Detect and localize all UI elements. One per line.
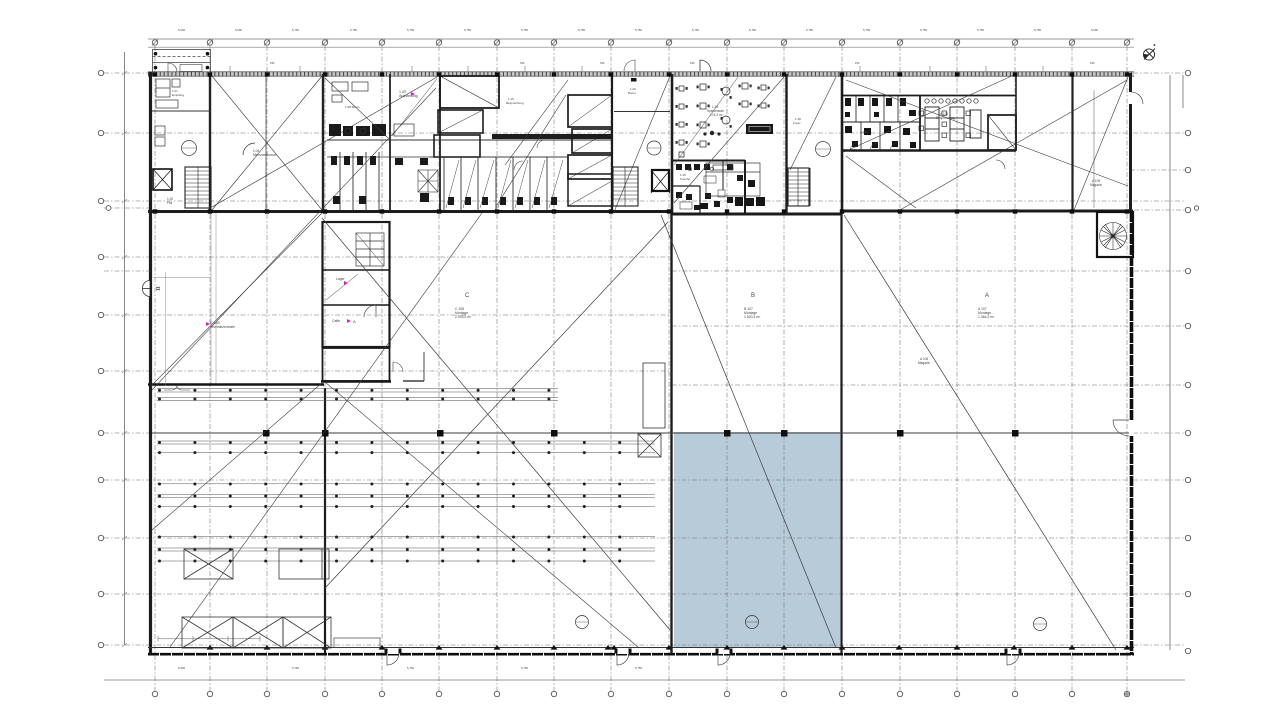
svg-text:5,750: 5,750 bbox=[920, 28, 927, 32]
svg-text:Besprechung: Besprechung bbox=[936, 116, 955, 120]
svg-text:5,750: 5,750 bbox=[806, 28, 813, 32]
svg-text:2.093,0 m²: 2.093,0 m² bbox=[455, 315, 472, 319]
svg-text:5,750: 5,750 bbox=[464, 28, 471, 32]
svg-text:Ausstellung: Ausstellung bbox=[399, 94, 418, 98]
svg-text:5,750: 5,750 bbox=[977, 28, 984, 32]
svg-text:Empfang: Empfang bbox=[172, 93, 184, 97]
svg-text:F90: F90 bbox=[600, 61, 605, 65]
svg-text:Foyer: Foyer bbox=[793, 121, 801, 125]
svg-text:Flur: Flur bbox=[167, 201, 173, 205]
svg-text:5,750: 5,750 bbox=[521, 666, 528, 670]
svg-text:5,750: 5,750 bbox=[863, 28, 870, 32]
svg-text:C: C bbox=[465, 293, 470, 299]
svg-text:1.364,2 m²: 1.364,2 m² bbox=[978, 315, 995, 319]
svg-text:5,000: 5,000 bbox=[235, 28, 242, 32]
svg-text:174,3 m²: 174,3 m² bbox=[710, 113, 723, 117]
svg-text:B: B bbox=[751, 293, 755, 299]
svg-text:F90: F90 bbox=[855, 61, 860, 65]
svg-text:5,750: 5,750 bbox=[749, 28, 756, 32]
svg-text:5,750: 5,750 bbox=[1034, 28, 1041, 32]
svg-text:F90: F90 bbox=[270, 61, 275, 65]
svg-text:1.520,3 m²: 1.520,3 m² bbox=[744, 315, 761, 319]
svg-text:F90: F90 bbox=[690, 61, 695, 65]
svg-text:1.08 Buero: 1.08 Buero bbox=[345, 105, 360, 109]
svg-text:A: A bbox=[353, 319, 356, 324]
svg-text:Technikzentrale: Technikzentrale bbox=[210, 325, 235, 329]
svg-text:5,750: 5,750 bbox=[635, 28, 642, 32]
svg-text:5,000: 5,000 bbox=[178, 666, 185, 670]
svg-text:F90: F90 bbox=[1090, 61, 1095, 65]
svg-text:A: A bbox=[985, 293, 989, 299]
svg-text:5,750: 5,750 bbox=[578, 28, 585, 32]
svg-text:5,750: 5,750 bbox=[292, 28, 299, 32]
svg-text:5,750: 5,750 bbox=[292, 666, 299, 670]
svg-text:Lager: Lager bbox=[336, 277, 346, 281]
svg-text:5,750: 5,750 bbox=[692, 28, 699, 32]
svg-text:F90: F90 bbox=[520, 61, 525, 65]
svg-text:Mehrzweckraum: Mehrzweckraum bbox=[253, 153, 277, 157]
svg-text:5,750: 5,750 bbox=[521, 28, 528, 32]
svg-text:5,750: 5,750 bbox=[407, 28, 414, 32]
svg-text:Magazin: Magazin bbox=[1090, 183, 1102, 187]
svg-text:5,000: 5,000 bbox=[1091, 28, 1098, 32]
svg-text:Magazin: Magazin bbox=[918, 361, 930, 365]
svg-text:Buero: Buero bbox=[628, 91, 636, 95]
svg-text:A 103: A 103 bbox=[860, 130, 868, 134]
svg-text:5,750: 5,750 bbox=[350, 28, 357, 32]
svg-text:Kueche: Kueche bbox=[680, 177, 691, 181]
svg-text:5,000: 5,000 bbox=[178, 28, 185, 32]
svg-text:Caffe: Caffe bbox=[332, 319, 340, 323]
svg-text:5,750: 5,750 bbox=[407, 666, 414, 670]
svg-text:5,750: 5,750 bbox=[635, 666, 642, 670]
svg-text:Besprechung: Besprechung bbox=[506, 101, 524, 105]
